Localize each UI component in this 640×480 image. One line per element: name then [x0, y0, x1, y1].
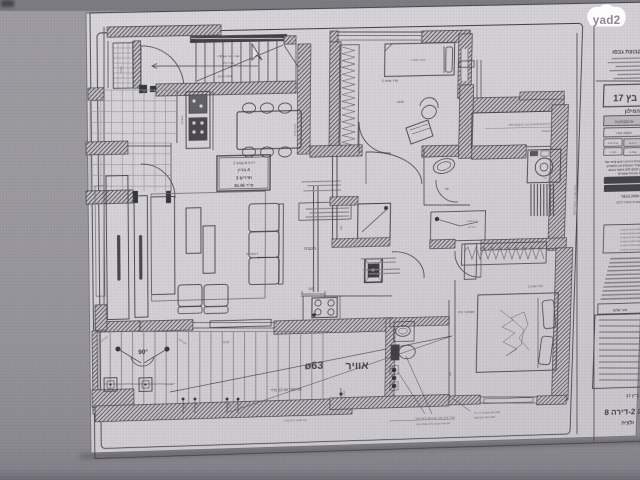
svg-text:ברז סמויה: ברז סמויה: [467, 220, 478, 223]
svg-text:מטבחון: מטבחון: [181, 116, 184, 125]
svg-text:90°: 90°: [138, 349, 148, 356]
svg-text:פינת אוכל: פינת אוכל: [293, 124, 297, 137]
svg-text:מטבח: מטבח: [304, 246, 316, 251]
svg-text:דירה 8: דירה 8: [629, 142, 637, 145]
svg-text:אינסטלציה: אינסטלציה: [614, 119, 633, 124]
svg-text:מיני אלומ: מיני אלומ: [613, 308, 628, 312]
svg-text:שם התכנית גרסה א: שם התכנית גרסה א: [620, 248, 640, 251]
svg-text:17 בץ: 17 בץ: [613, 93, 637, 105]
svg-text:דוד: דוד: [543, 177, 547, 180]
svg-text:81.95 מ"ר: 81.95 מ"ר: [234, 183, 253, 188]
svg-text:מרפסת 12.04 מ"ר: מרפסת 12.04 מ"ר: [271, 387, 302, 393]
svg-text:תפנורים: תפנורים: [246, 252, 258, 256]
svg-text:יציאת חביצה: יציאת חביצה: [217, 74, 232, 78]
svg-text:קבוצת גבסו: קבוצת גבסו: [612, 49, 640, 56]
svg-text:+3.65: +3.65: [196, 402, 199, 409]
svg-text:דירה 8 קומה 2: דירה 8 קומה 2: [233, 161, 255, 166]
svg-text:שם התכנית גרסה א: שם התכנית גרסה א: [620, 244, 640, 247]
svg-text:+2.50: +2.50: [343, 390, 346, 397]
svg-text:ø63: ø63: [305, 360, 324, 372]
svg-text:שם התכנית גרסה א: שם התכנית גרסה א: [620, 240, 640, 243]
svg-text:שם התכנית גרסה א: שם התכנית גרסה א: [620, 236, 640, 239]
svg-text:146: 146: [339, 225, 343, 230]
svg-text:60: 60: [445, 187, 449, 191]
svg-text:110: 110: [308, 287, 313, 291]
svg-text:yad2: yad2: [593, 13, 621, 27]
svg-text:המילון: המילון: [624, 108, 640, 115]
svg-text:ב"ץ 17: ב"ץ 17: [626, 393, 639, 398]
svg-text:שם התכנית גרסה א: שם התכנית גרסה א: [620, 232, 640, 235]
svg-text:-0.02: -0.02: [222, 340, 229, 344]
svg-text:הקמה וארז: הקמה וארז: [616, 131, 632, 135]
svg-text:+3.58: +3.58: [184, 402, 187, 409]
svg-text:שם התכנית גרסה א: שם התכנית גרסה א: [620, 228, 640, 231]
svg-text:10 דצל: 10 דצל: [468, 225, 476, 229]
svg-text:מגרש והאדריכלים: מגרש והאדריכלים: [616, 200, 640, 205]
svg-text:ולציה: ולציה: [621, 419, 634, 426]
svg-text:מעלית: מעלית: [119, 66, 123, 74]
svg-text:כל הזכויות שמורות: כל הזכויות שמורות: [618, 171, 640, 176]
svg-text:מיטה וספריה: מיטה וספריה: [410, 58, 425, 62]
svg-text:חדר שינה 2: חדר שינה 2: [382, 79, 398, 83]
svg-text:מקלחון 7 ס"מ: מקלחון 7 ס"מ: [458, 310, 475, 314]
svg-text:קומה 2: קומה 2: [629, 151, 637, 154]
svg-text:ראש גשם Hw=220: ראש גשם Hw=220: [474, 415, 496, 419]
svg-text:בניין A: בניין A: [238, 167, 250, 172]
svg-text:3 חדרים: 3 חדרים: [236, 175, 252, 180]
svg-text:536: 536: [448, 371, 452, 376]
svg-text:ה 2-דירה 8: ה 2-דירה 8: [604, 406, 640, 417]
svg-text:סף מעקה חדש 1.10: סף מעקה חדש 1.10: [283, 418, 306, 423]
svg-text:תאריך: תאריך: [610, 151, 617, 154]
svg-text:עמק בבצר.: עמק בבצר.: [620, 193, 640, 198]
svg-text:+4.68: +4.68: [228, 402, 231, 409]
svg-text:אוויר: אוויר: [345, 360, 369, 372]
svg-text:+0.02: +0.02: [396, 100, 404, 104]
svg-text:צוהר חילוץ: צוהר חילוץ: [222, 61, 234, 65]
svg-text:קנ"מ 1:50: קנ"מ 1:50: [608, 142, 619, 145]
svg-text:אמבטיה 2 דור Hw=110: אמבטיה 2 דור Hw=110: [474, 410, 501, 415]
svg-text:חדר שינה 1: חדר שינה 1: [528, 284, 543, 288]
svg-text:עובר כבוד אש 30 ד: עובר כבוד אש 30 ד: [217, 54, 240, 59]
